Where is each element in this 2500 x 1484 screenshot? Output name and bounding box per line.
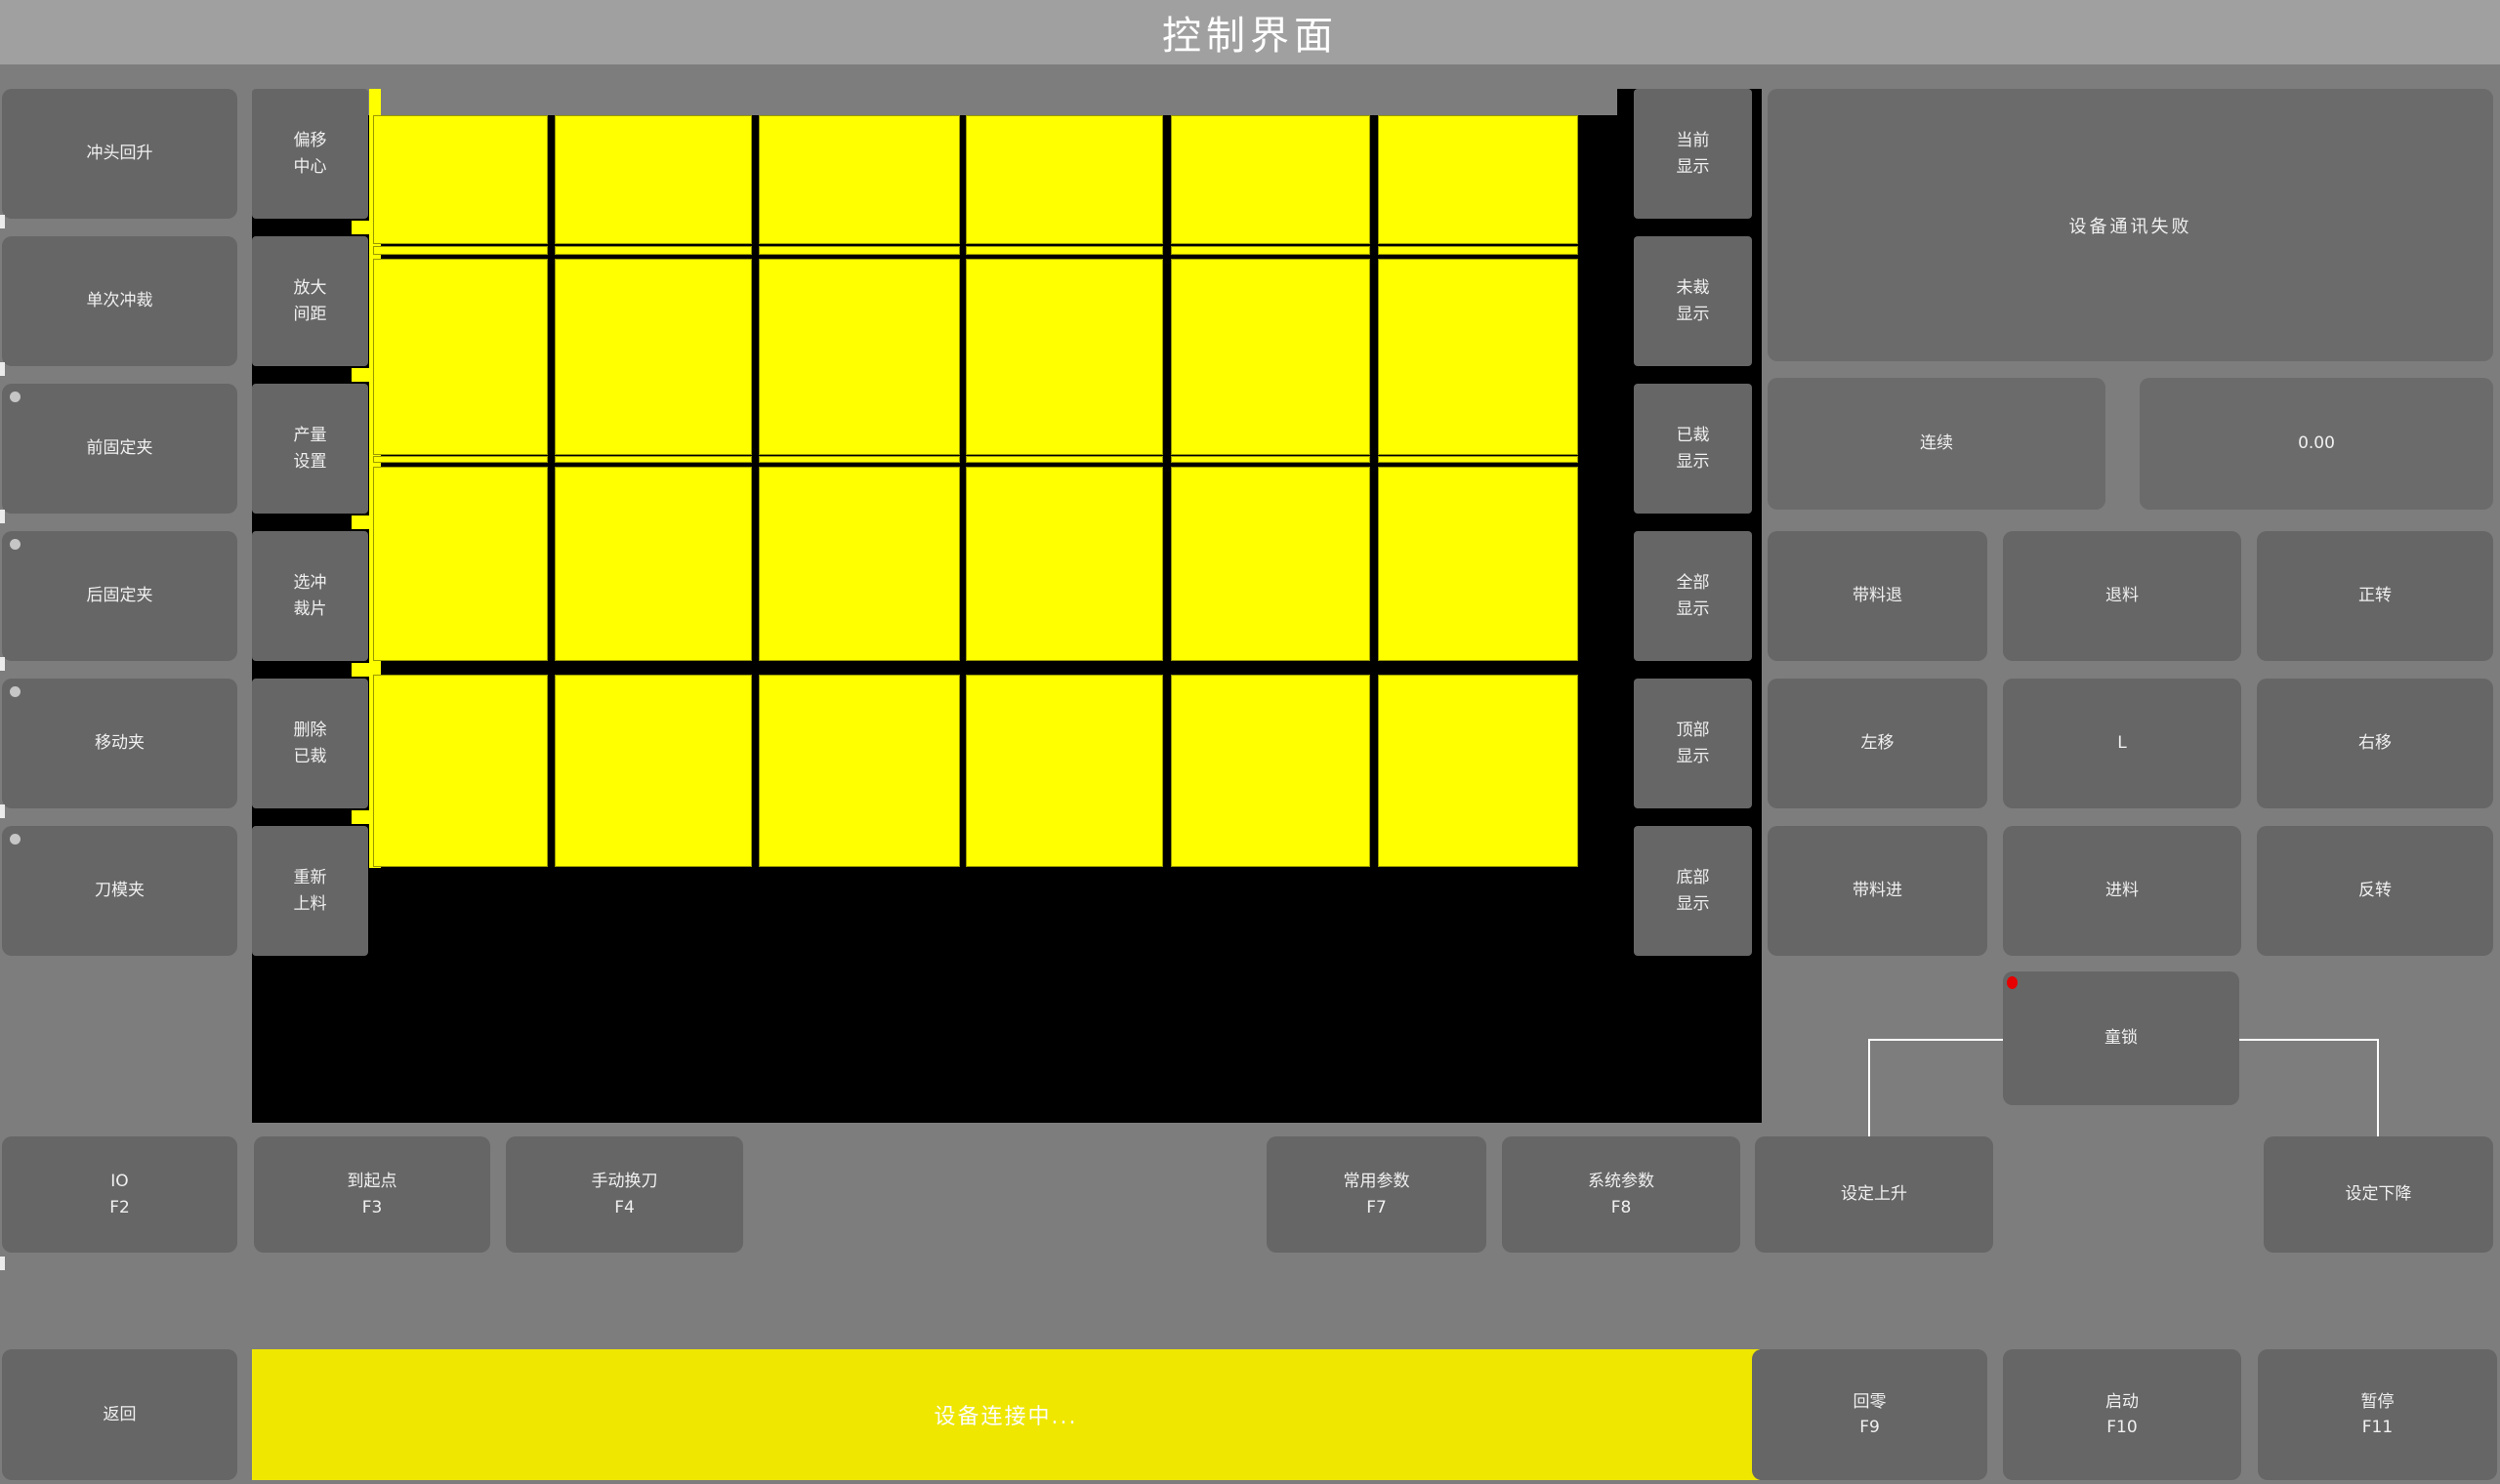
button-feed-back-with-material[interactable]: 带料退 — [1768, 531, 1987, 661]
cut-piece-strip — [373, 456, 548, 463]
button-set-lower[interactable]: 设定下降 — [2264, 1136, 2493, 1253]
button-offset-center[interactable]: 偏移 中心 — [252, 89, 368, 219]
cut-piece-strip — [1171, 246, 1370, 255]
button-label: 删除 已裁 — [294, 718, 327, 769]
button-label: 设定下降 — [2346, 1181, 2412, 1207]
button-enlarge-spacing[interactable]: 放大 间距 — [252, 236, 368, 366]
button-label: 后固定夹 — [87, 583, 153, 608]
button-show-all[interactable]: 全部 显示 — [1634, 531, 1752, 661]
button-label: 暂停 F11 — [2361, 1389, 2395, 1441]
alert-indicator-dot — [2007, 976, 2018, 989]
button-delete-cut[interactable]: 删除 已裁 — [252, 679, 368, 808]
cut-piece[interactable] — [373, 259, 548, 455]
button-label: 全部 显示 — [1677, 570, 1710, 622]
cut-piece[interactable] — [1171, 259, 1370, 455]
button-label: 带料进 — [1853, 878, 1902, 903]
cut-piece-strip — [759, 246, 960, 255]
cut-piece[interactable] — [1171, 115, 1370, 244]
comm-status-message: 设备通讯失败 — [2069, 213, 2192, 238]
cut-piece-strip — [759, 456, 960, 463]
button-label: 退料 — [2105, 583, 2139, 608]
cut-piece[interactable] — [373, 115, 548, 244]
button-label: 进料 — [2105, 878, 2139, 903]
button-label: 选冲 裁片 — [294, 570, 327, 622]
button-reverse-rotate[interactable]: 反转 — [2257, 826, 2493, 956]
cut-piece[interactable] — [373, 675, 548, 867]
button-home-f9[interactable]: 回零 F9 — [1752, 1349, 1987, 1480]
button-label: 回零 F9 — [1854, 1389, 1887, 1441]
cut-piece-strip — [373, 246, 548, 255]
button-output-settings[interactable]: 产量 设置 — [252, 384, 368, 514]
button-label: 正转 — [2358, 583, 2392, 608]
button-label: 移动夹 — [95, 730, 145, 756]
button-rear-clamp[interactable]: 后固定夹 — [2, 531, 237, 661]
button-label: 童锁 — [2104, 1025, 2138, 1051]
connection-status-bar: 设备连接中... — [252, 1349, 1760, 1480]
edge-tick — [0, 215, 5, 228]
button-label: 右移 — [2358, 730, 2392, 756]
button-move-left[interactable]: 左移 — [1768, 679, 1987, 808]
button-continuous-mode[interactable]: 连续 — [1768, 378, 2105, 510]
button-label: 返回 — [104, 1402, 137, 1427]
cut-piece[interactable] — [555, 259, 752, 455]
button-die-clamp[interactable]: 刀模夹 — [2, 826, 237, 956]
state-indicator-dot — [10, 834, 21, 845]
button-label: 到起点 F3 — [348, 1169, 397, 1220]
button-label: 产量 设置 — [294, 423, 327, 474]
button-move-right[interactable]: 右移 — [2257, 679, 2493, 808]
button-label: 未裁 显示 — [1677, 275, 1710, 327]
cut-piece[interactable] — [759, 259, 960, 455]
button-label: 偏移 中心 — [294, 128, 327, 180]
button-label: 连续 — [1920, 431, 1953, 456]
button-show-cut[interactable]: 已裁 显示 — [1634, 384, 1752, 514]
button-label: 刀模夹 — [95, 878, 145, 903]
button-select-pieces[interactable]: 选冲 裁片 — [252, 531, 368, 661]
comm-status-box: 设备通讯失败 — [1768, 89, 2493, 361]
control-interface-screen: 控制界面 冲头回升 单次冲裁 前固定夹 后固定夹 移动夹 刀模夹 偏移 中心 放… — [0, 0, 2500, 1484]
cut-piece[interactable] — [966, 115, 1163, 244]
cut-piece[interactable] — [555, 115, 752, 244]
button-label: 常用参数 F7 — [1344, 1169, 1410, 1220]
cut-piece[interactable] — [1378, 115, 1578, 244]
edge-tick — [0, 1257, 5, 1270]
button-show-uncut[interactable]: 未裁 显示 — [1634, 236, 1752, 366]
button-label: 设定上升 — [1841, 1181, 1907, 1207]
cut-piece-strip — [555, 456, 752, 463]
button-feed-in-with-material[interactable]: 带料进 — [1768, 826, 1987, 956]
button-system-params-f8[interactable]: 系统参数 F8 — [1502, 1136, 1740, 1253]
button-label: 已裁 显示 — [1677, 423, 1710, 474]
cut-piece[interactable] — [555, 467, 752, 661]
button-label: 单次冲裁 — [87, 288, 153, 313]
cut-piece[interactable] — [1378, 675, 1578, 867]
button-label: 重新 上料 — [294, 865, 327, 917]
cut-piece-strip — [1378, 456, 1578, 463]
cut-piece-strip — [966, 246, 1163, 255]
button-set-rise[interactable]: 设定上升 — [1755, 1136, 1993, 1253]
cut-piece[interactable] — [759, 115, 960, 244]
cut-piece-strip — [555, 246, 752, 255]
button-label: 冲头回升 — [87, 141, 153, 166]
state-indicator-dot — [10, 392, 21, 402]
cut-piece[interactable] — [1171, 675, 1370, 867]
button-io-f2[interactable]: IO F2 — [2, 1136, 237, 1253]
cut-piece[interactable] — [966, 259, 1163, 455]
button-label: L — [2117, 730, 2126, 756]
cut-piece-strip — [966, 456, 1163, 463]
title-bar: 控制界面 — [0, 0, 2500, 64]
button-show-top[interactable]: 顶部 显示 — [1634, 679, 1752, 808]
page-title: 控制界面 — [1162, 4, 1338, 61]
button-pause-f11[interactable]: 暂停 F11 — [2258, 1349, 2497, 1480]
button-forward-rotate[interactable]: 正转 — [2257, 531, 2493, 661]
button-label: 反转 — [2358, 878, 2392, 903]
state-indicator-dot — [10, 686, 21, 697]
edge-tick — [0, 804, 5, 818]
button-label: 启动 F10 — [2105, 1389, 2139, 1441]
button-manual-tool-change-f4[interactable]: 手动换刀 F4 — [506, 1136, 743, 1253]
button-label: 底部 显示 — [1677, 865, 1710, 917]
button-to-origin-f3[interactable]: 到起点 F3 — [254, 1136, 490, 1253]
state-indicator-dot — [10, 539, 21, 550]
button-show-bottom[interactable]: 底部 显示 — [1634, 826, 1752, 956]
connection-status-text: 设备连接中... — [935, 1399, 1078, 1430]
edge-tick — [0, 510, 5, 523]
value-text: 0.00 — [2298, 431, 2335, 456]
button-reload-material[interactable]: 重新 上料 — [252, 826, 368, 956]
button-label: 当前 显示 — [1677, 128, 1710, 180]
button-show-current[interactable]: 当前 显示 — [1634, 89, 1752, 219]
cut-piece[interactable] — [759, 467, 960, 661]
button-label: 左移 — [1861, 730, 1895, 756]
cut-piece[interactable] — [555, 675, 752, 867]
button-common-params-f7[interactable]: 常用参数 F7 — [1267, 1136, 1486, 1253]
button-label: 顶部 显示 — [1677, 718, 1710, 769]
button-l[interactable]: L — [2003, 679, 2241, 808]
cut-piece[interactable] — [966, 467, 1163, 661]
cut-piece-strip — [1378, 246, 1578, 255]
button-punch-raise[interactable]: 冲头回升 — [2, 89, 237, 219]
button-front-clamp[interactable]: 前固定夹 — [2, 384, 237, 514]
button-material-back[interactable]: 退料 — [2003, 531, 2241, 661]
value-display[interactable]: 0.00 — [2140, 378, 2493, 510]
button-back[interactable]: 返回 — [2, 1349, 237, 1480]
button-material-in[interactable]: 进料 — [2003, 826, 2241, 956]
button-start-f10[interactable]: 启动 F10 — [2003, 1349, 2241, 1480]
cut-piece[interactable] — [373, 467, 548, 661]
button-label: IO F2 — [109, 1169, 130, 1220]
button-label: 带料退 — [1853, 583, 1902, 608]
cut-piece[interactable] — [1378, 467, 1578, 661]
button-moving-clamp[interactable]: 移动夹 — [2, 679, 237, 808]
button-single-punch[interactable]: 单次冲裁 — [2, 236, 237, 366]
button-label: 放大 间距 — [294, 275, 327, 327]
edge-tick — [0, 362, 5, 376]
button-label: 手动换刀 F4 — [592, 1169, 658, 1220]
cut-piece-strip — [1171, 456, 1370, 463]
cut-piece[interactable] — [1378, 259, 1578, 455]
cut-piece[interactable] — [966, 675, 1163, 867]
edge-tick — [0, 657, 5, 671]
button-label: 系统参数 F8 — [1588, 1169, 1654, 1220]
button-label: 前固定夹 — [87, 435, 153, 461]
button-child-lock[interactable]: 童锁 — [2003, 971, 2239, 1105]
cut-piece[interactable] — [1171, 467, 1370, 661]
cut-piece[interactable] — [759, 675, 960, 867]
